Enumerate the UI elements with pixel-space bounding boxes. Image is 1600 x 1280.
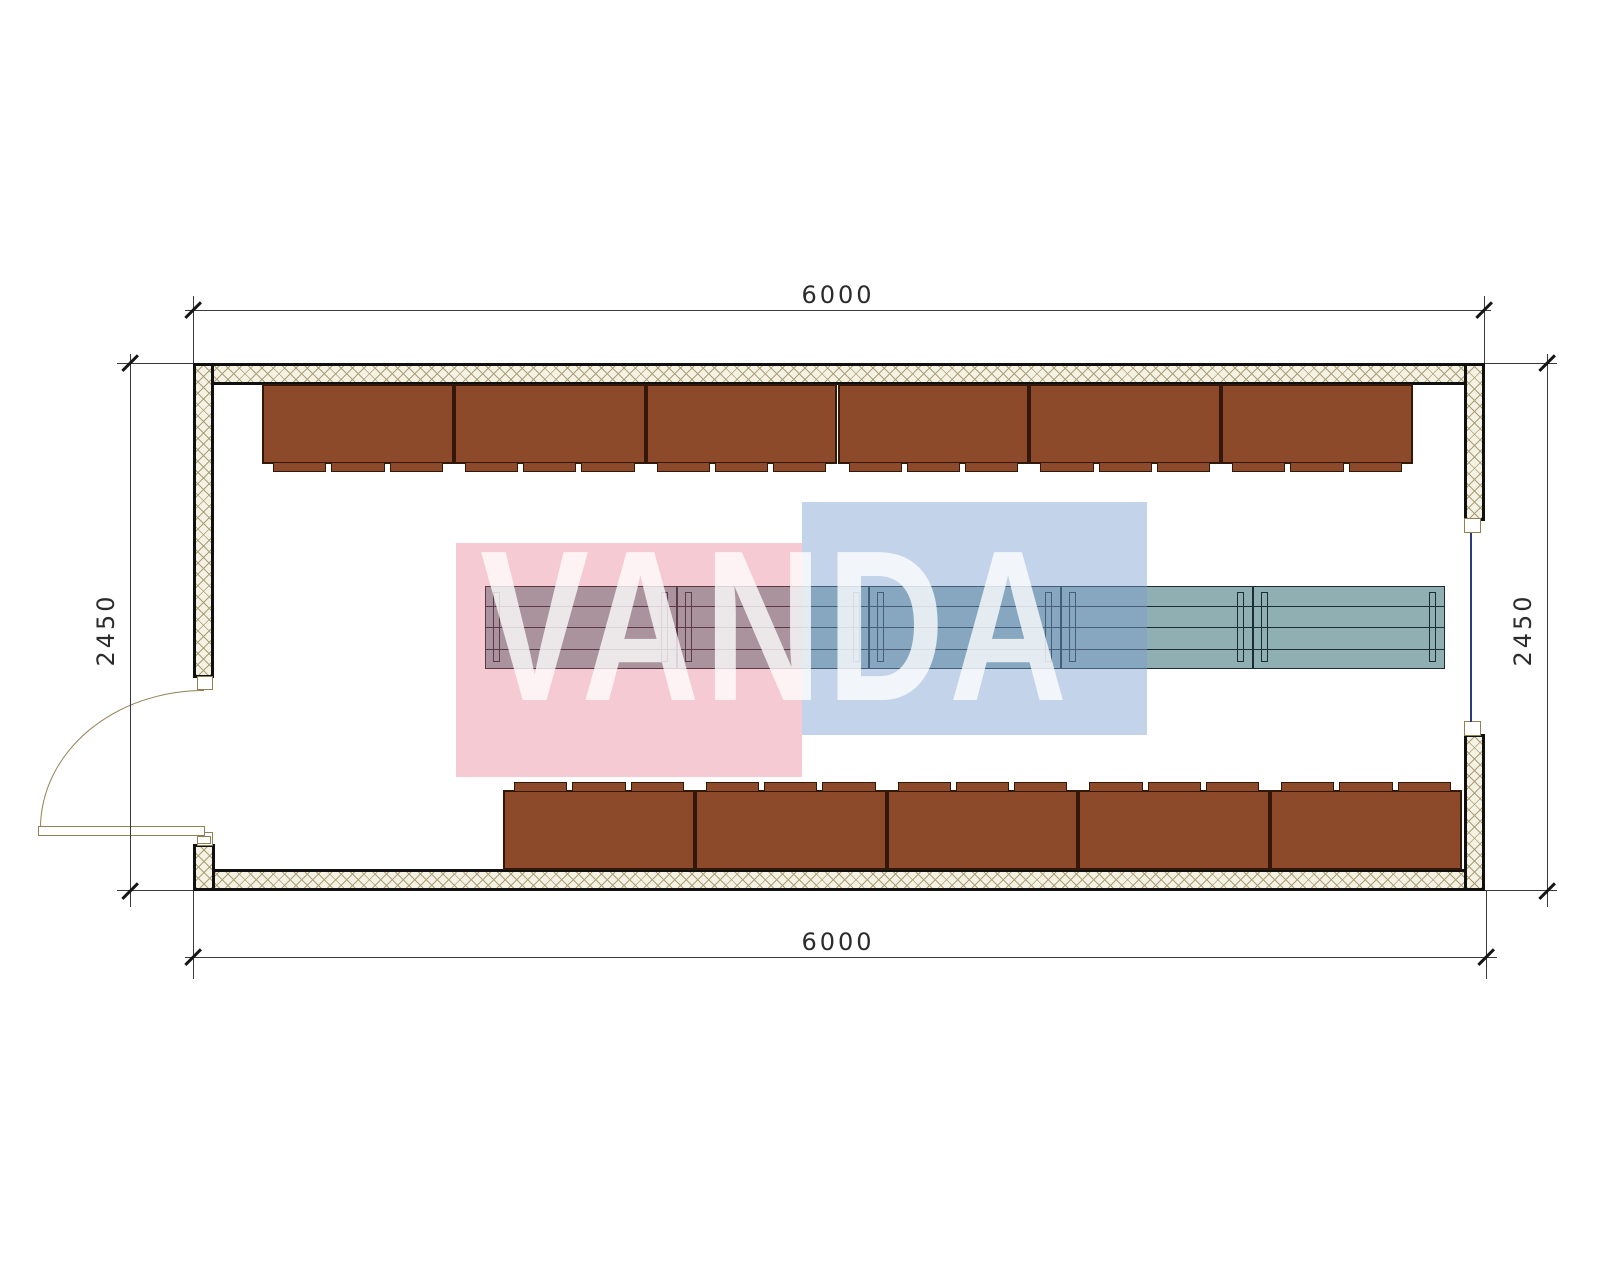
bench-seat-tab — [822, 782, 875, 792]
dim-label-right: 2450 — [1511, 560, 1536, 700]
window-glazing-line — [1470, 533, 1472, 722]
door-swing-arc — [40, 690, 204, 828]
bench-seat-body — [503, 790, 695, 870]
bench-seat-tab — [1148, 782, 1201, 792]
bench-seat-tab — [1398, 782, 1451, 792]
wall-right-upper — [1464, 363, 1485, 521]
bottom-bench-unit — [1078, 782, 1270, 871]
door-threshold — [197, 836, 211, 844]
dim-label-top: 6000 — [758, 283, 918, 308]
bench-seat-tab — [273, 462, 326, 472]
bottom-bench-unit — [695, 782, 887, 871]
bench-seat-tab — [898, 782, 951, 792]
window-jamb-bottom — [1464, 721, 1481, 736]
dim-top-line — [185, 310, 1491, 311]
dim-label-bottom: 6000 — [758, 930, 918, 955]
bench-seat-tab — [465, 462, 518, 472]
table-leg — [1261, 592, 1268, 662]
bottom-bench-unit — [503, 782, 695, 871]
bench-seat-tab — [1014, 782, 1067, 792]
wall-left-door-stub — [193, 844, 215, 891]
bench-seat-tab — [331, 462, 384, 472]
bench-seat-body — [646, 384, 838, 464]
bench-seat-body — [454, 384, 646, 464]
wall-right-lower — [1464, 734, 1485, 891]
bench-seat-tab — [1281, 782, 1334, 792]
floor-plan-canvas: 6000 6000 2450 2450 VANDA — [0, 0, 1600, 1280]
door-leaf — [38, 826, 205, 836]
bench-seat-tab — [631, 782, 684, 792]
table-leg — [1237, 592, 1244, 662]
bench-seat-tab — [773, 462, 826, 472]
bench-seat-tab — [965, 462, 1018, 472]
dim-bottom-ext-right — [1486, 891, 1487, 979]
bench-seat-tab — [849, 462, 902, 472]
bench-seat-tab — [581, 462, 634, 472]
bench-seat-body — [262, 384, 454, 464]
wall-bottom — [193, 869, 1485, 891]
bench-seat-tab — [1339, 782, 1392, 792]
dim-left-line — [130, 354, 131, 907]
bench-seat-tab — [764, 782, 817, 792]
bench-seat-body — [1029, 384, 1221, 464]
dim-bottom-ext-left — [193, 891, 194, 979]
door-jamb-top — [197, 676, 213, 690]
bench-seat-tab — [907, 462, 960, 472]
bottom-bench-unit — [887, 782, 1079, 871]
table-edge-line — [1254, 606, 1444, 607]
bench-seat-body — [1221, 384, 1413, 464]
top-bench-unit — [1221, 384, 1413, 474]
bench-seat-tab — [1157, 462, 1210, 472]
top-bench-row — [262, 384, 1413, 474]
top-bench-unit — [262, 384, 454, 474]
bench-seat-tab — [1206, 782, 1259, 792]
table-edge-line — [1254, 627, 1444, 628]
window-jamb-top — [1464, 518, 1481, 533]
bench-seat-tab — [956, 782, 1009, 792]
bench-seat-tab — [657, 462, 710, 472]
dim-right-line — [1547, 354, 1548, 907]
bench-seat-tab — [1290, 462, 1343, 472]
bench-seat-tab — [514, 782, 567, 792]
table-leg — [1429, 592, 1436, 662]
watermark-text: VANDA — [480, 518, 1072, 733]
bench-seat-body — [887, 790, 1079, 870]
table-edge-line — [1254, 649, 1444, 650]
bench-seat-tab — [1232, 462, 1285, 472]
bench-seat-tab — [572, 782, 625, 792]
top-bench-unit — [646, 384, 838, 474]
table-unit — [1253, 586, 1445, 669]
bench-seat-body — [1270, 790, 1462, 870]
bench-seat-tab — [1089, 782, 1142, 792]
bench-seat-tab — [1040, 462, 1093, 472]
bottom-bench-row — [503, 782, 1462, 871]
bench-seat-tab — [390, 462, 443, 472]
bench-seat-tab — [523, 462, 576, 472]
bench-seat-body — [1078, 790, 1270, 870]
wall-top — [193, 363, 1485, 385]
top-bench-unit — [1029, 384, 1221, 474]
bench-seat-body — [838, 384, 1030, 464]
bench-seat-tab — [715, 462, 768, 472]
bottom-bench-unit — [1270, 782, 1462, 871]
top-bench-unit — [838, 384, 1030, 474]
wall-left-upper — [193, 363, 214, 678]
bench-seat-body — [695, 790, 887, 870]
top-bench-unit — [454, 384, 646, 474]
dim-label-left: 2450 — [94, 560, 119, 700]
bench-seat-tab — [1349, 462, 1402, 472]
dim-bottom-line — [185, 957, 1497, 958]
bench-seat-tab — [1099, 462, 1152, 472]
bench-seat-tab — [706, 782, 759, 792]
